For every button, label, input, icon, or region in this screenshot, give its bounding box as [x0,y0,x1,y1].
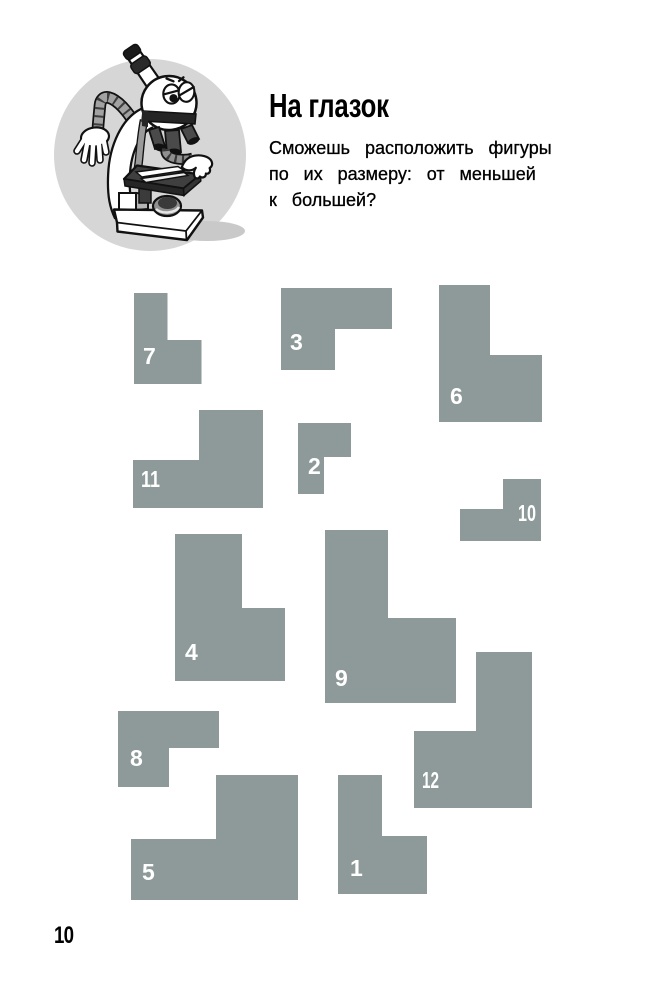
svg-text:4: 4 [185,639,198,665]
svg-text:9: 9 [335,665,348,691]
svg-text:5: 5 [142,859,155,885]
svg-text:10: 10 [518,500,536,526]
svg-text:11: 11 [141,466,160,492]
svg-text:3: 3 [290,329,303,355]
svg-text:1: 1 [350,855,363,881]
svg-text:2: 2 [308,453,321,479]
svg-text:12: 12 [422,767,439,793]
svg-text:7: 7 [143,343,156,369]
svg-text:8: 8 [130,745,143,771]
svg-text:6: 6 [450,383,463,409]
